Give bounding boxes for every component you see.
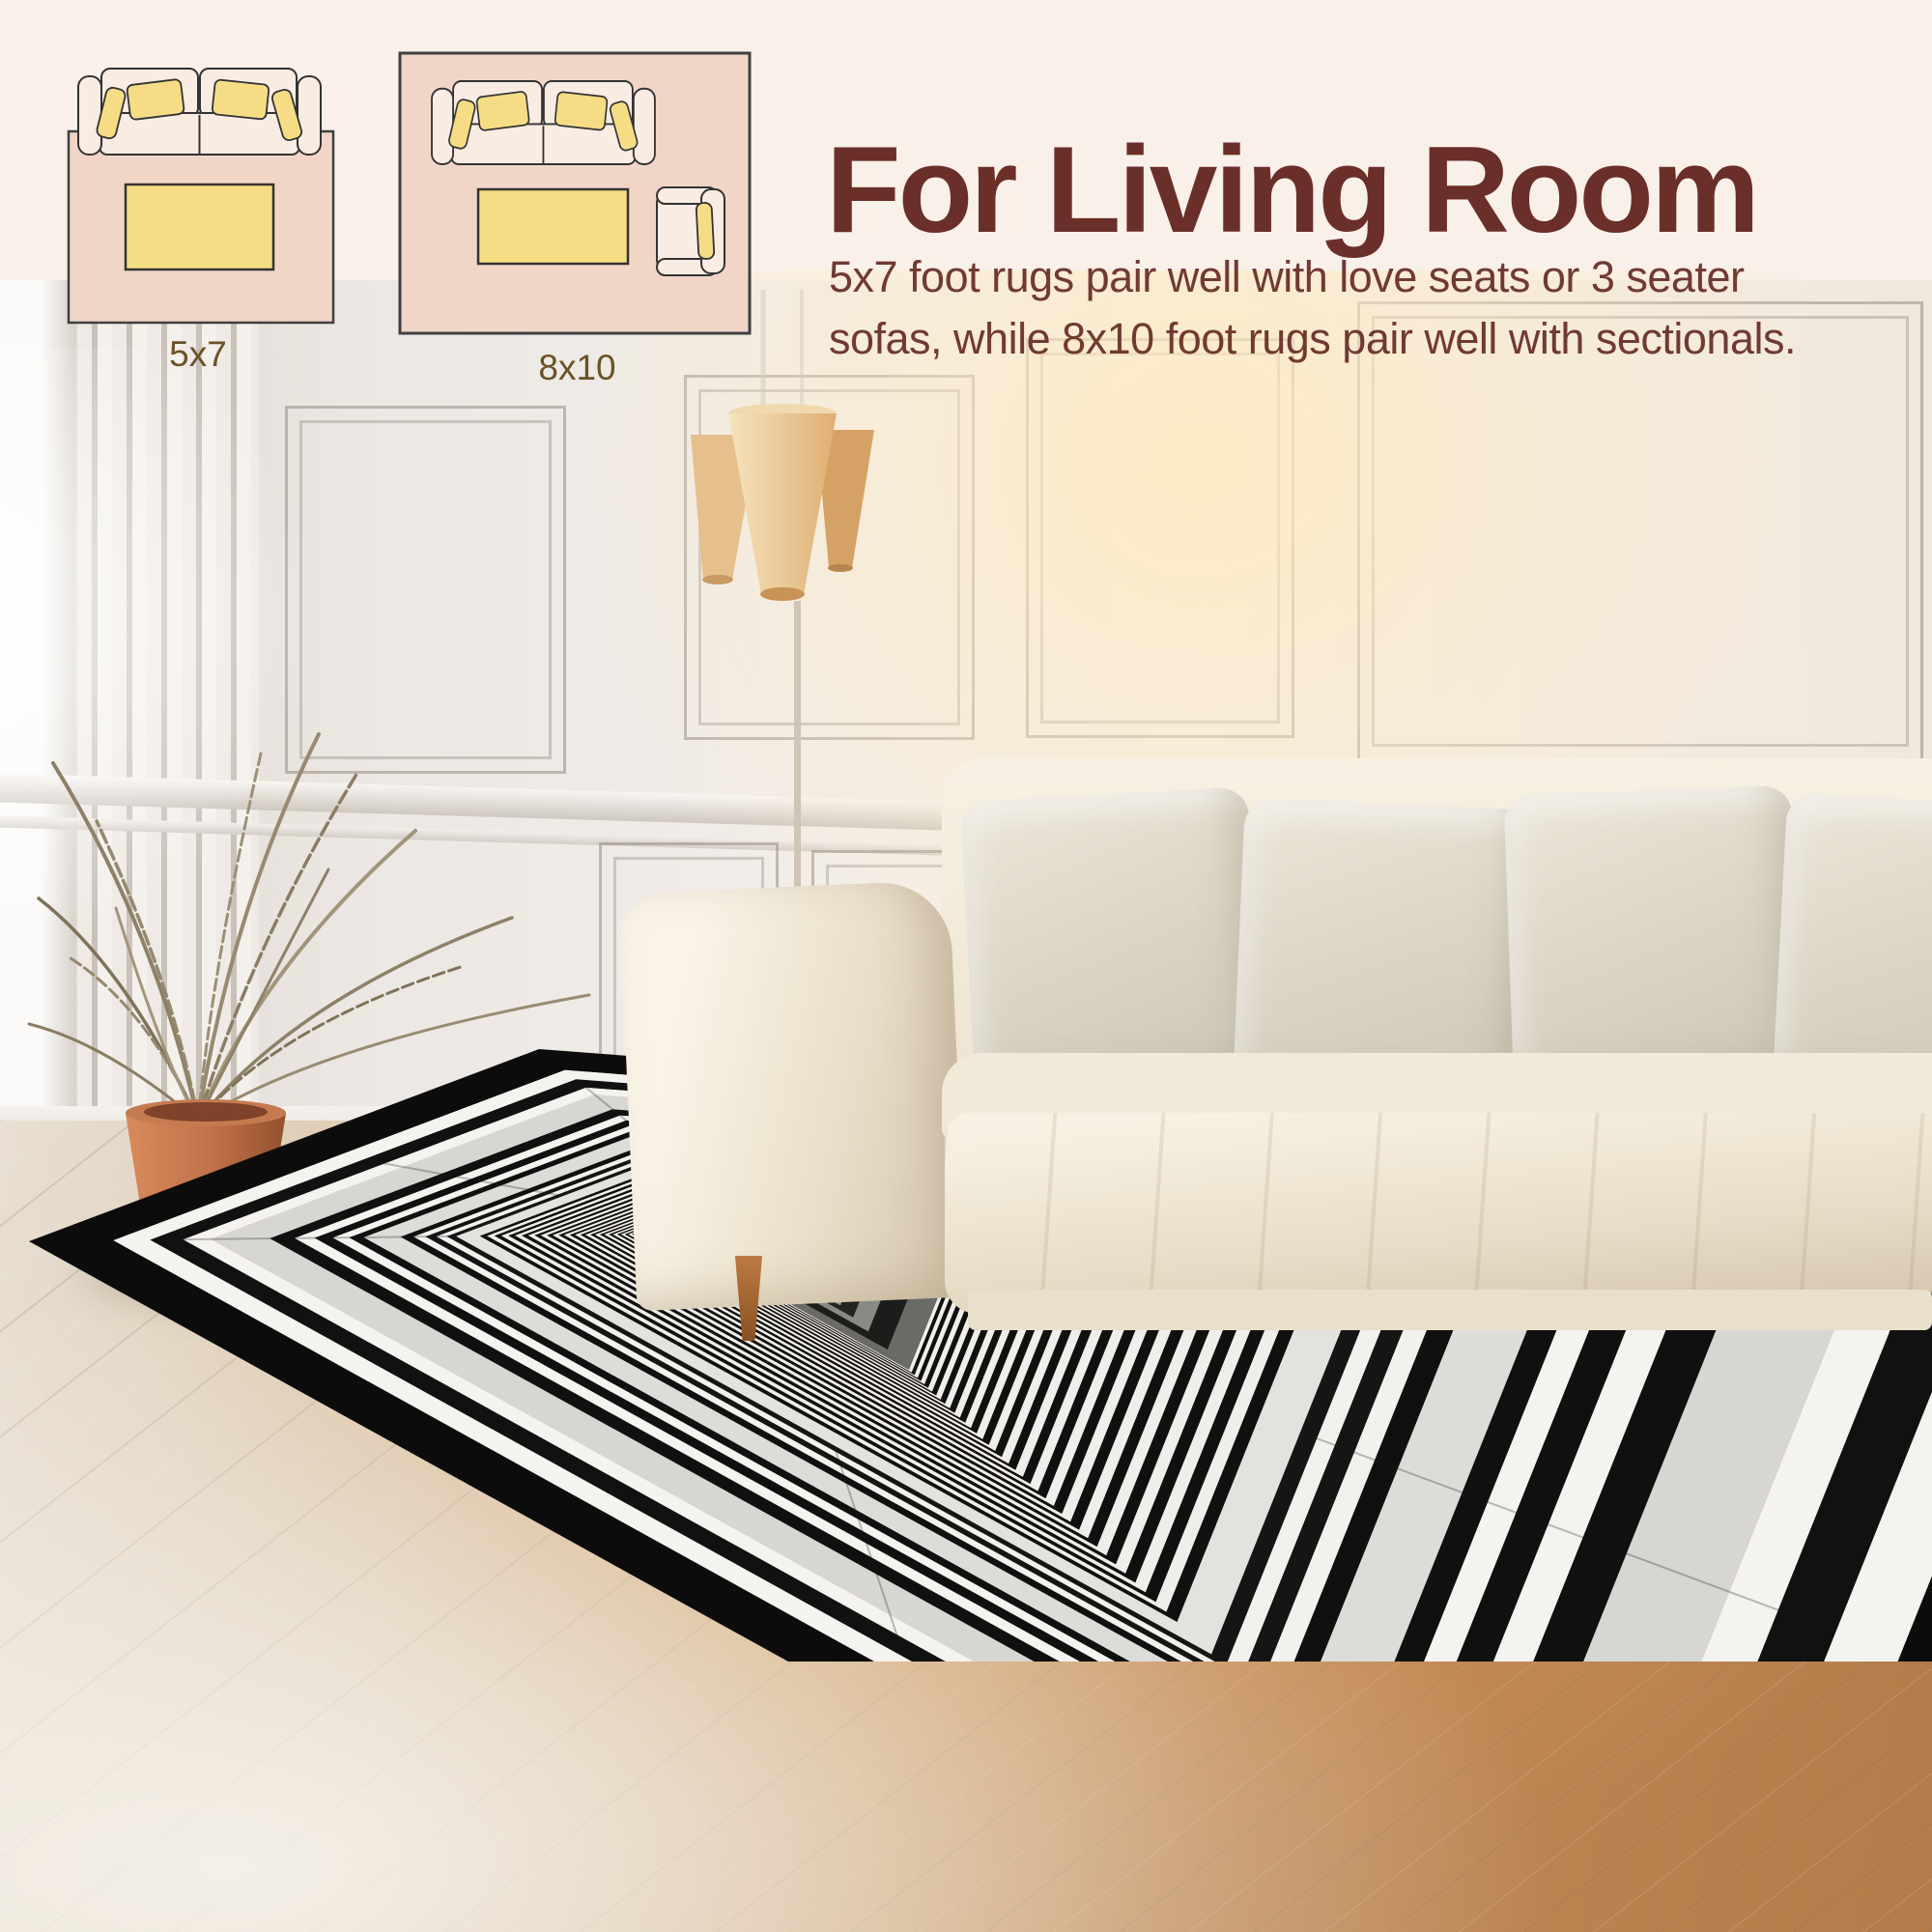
rug-product-infographic: 5x7: [0, 0, 1932, 1932]
diagram-label-8x10: 8x10: [391, 348, 763, 388]
coffee-table-icon: [478, 189, 628, 264]
header-band: 5x7: [0, 0, 1932, 444]
diagram-label-5x7: 5x7: [58, 334, 338, 375]
coffee-table-icon: [126, 185, 273, 270]
description-text: 5x7 foot rugs pair well with love seats …: [829, 246, 1920, 370]
description-line-1: 5x7 foot rugs pair well with love seats …: [829, 246, 1920, 308]
rug-size-diagram-8x10: [391, 43, 763, 343]
rug-size-diagram-5x7: [58, 53, 338, 333]
description-line-2: sofas, while 8x10 foot rugs pair well wi…: [829, 308, 1920, 370]
loveseat-top-view-icon: [78, 69, 321, 155]
page-title: For Living Room: [826, 121, 1918, 258]
armchair-top-view-icon: [657, 187, 724, 275]
